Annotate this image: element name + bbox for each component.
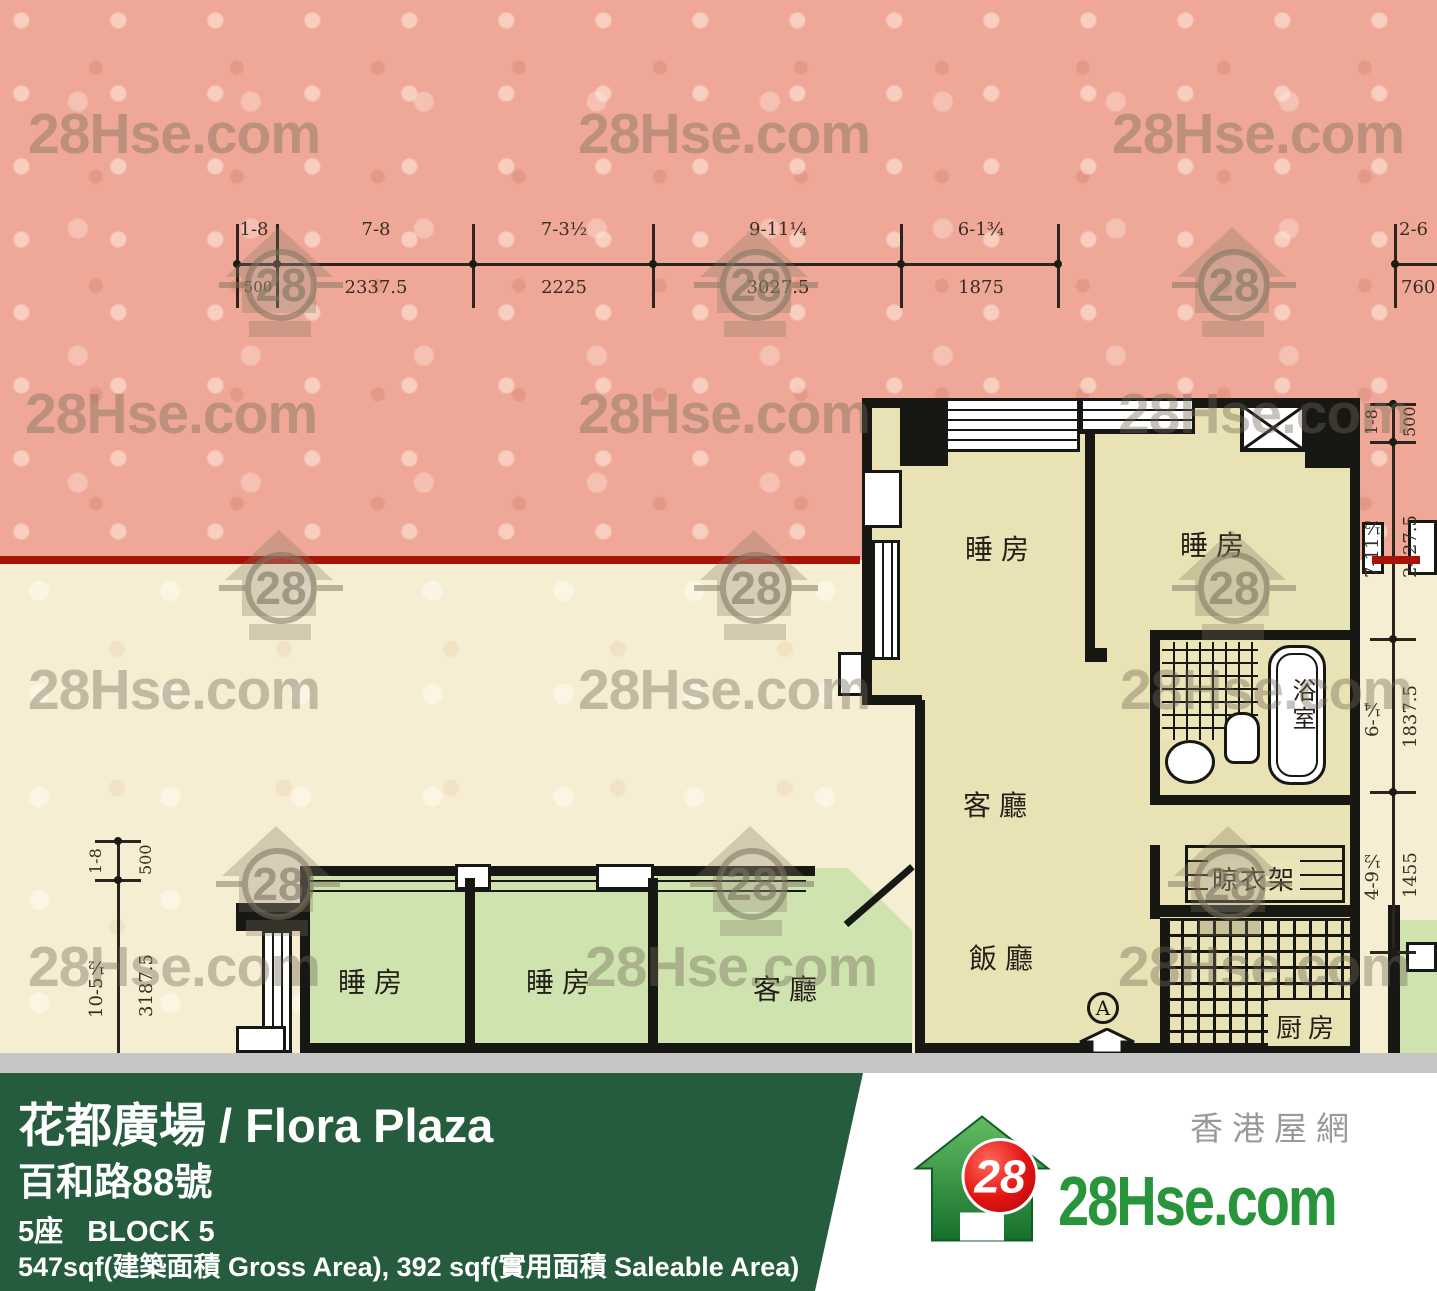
dimension-point [469, 260, 477, 268]
wall-pillar [900, 402, 948, 466]
dim-label-feet: 1-8 [86, 836, 105, 886]
window-icon [945, 398, 1080, 452]
svg-text:28: 28 [1208, 562, 1259, 614]
dim-label-feet: 7-3½ [512, 219, 616, 240]
dimension-point [1391, 260, 1399, 268]
window-icon [872, 540, 900, 660]
watermark-28hse-text: 28Hse.com [28, 657, 320, 723]
dimension-point [1054, 260, 1062, 268]
dim-label-feet: 7-8 [338, 219, 414, 240]
dim-label-mm: 2225 [518, 277, 610, 298]
svg-text:28: 28 [730, 259, 781, 311]
divider-strip [0, 1053, 1437, 1073]
block-label: 5座 BLOCK 5 [18, 1208, 215, 1250]
dimension-point [897, 260, 905, 268]
dim-label-mm: 1455 [1400, 816, 1421, 934]
project-address: 百和路88號 [18, 1151, 212, 1206]
dim-label-mm: 500 [136, 834, 155, 886]
watermark-28-house-icon: 28 [694, 530, 818, 650]
room-label-kitchen: 厨房 [1276, 1008, 1340, 1045]
logo-cn-text: 香港屋網 [1190, 1102, 1358, 1150]
floorplan-page: 浴室 晾衣架 厨房 A 睡房 睡房 客廳 飯廳 睡房 睡房 客廳 [0, 0, 1437, 1291]
wall [915, 700, 925, 1053]
lobby-box [862, 470, 902, 528]
watermark-28-house-icon: 28 [1172, 227, 1296, 347]
svg-text:28: 28 [255, 562, 306, 614]
red-boundary-line [1372, 556, 1420, 564]
dim-label-mm: 2337.5 [330, 277, 422, 298]
svg-text:28: 28 [1204, 858, 1255, 910]
watermark-28hse-text: 28Hse.com [1118, 381, 1410, 447]
watermark-28-house-icon: 28 [690, 826, 814, 946]
area-label: 547sqf(建築面積 Gross Area), 392 sqf(實用面積 Sa… [18, 1245, 799, 1284]
window-box [236, 1026, 286, 1053]
dimension-point [114, 876, 122, 884]
window-box [596, 864, 654, 890]
dimension-point [649, 260, 657, 268]
svg-text:28: 28 [1208, 259, 1259, 311]
project-title: 花都廣場 / Flora Plaza [18, 1087, 493, 1156]
wall [465, 878, 475, 1053]
watermark-28hse-text: 28Hse.com [1112, 101, 1404, 167]
dimension-point [114, 837, 122, 845]
entrance-arrow-icon [1078, 1028, 1136, 1054]
svg-text:28: 28 [726, 858, 777, 910]
logo-brand-text: 28Hse.com [1058, 1160, 1336, 1241]
toilet-icon [1165, 740, 1215, 784]
wall [300, 1043, 912, 1053]
watermark-28-house-icon: 28 [216, 826, 340, 946]
watermark-28-house-icon: 28 [1168, 826, 1292, 946]
dimension-point [1389, 635, 1397, 643]
watermark-28-house-icon: 28 [219, 530, 343, 650]
room-label-dining: 飯廳 [969, 937, 1041, 977]
dim-label-feet: 6-1¾ [926, 219, 1036, 240]
svg-text:28: 28 [973, 1151, 1026, 1203]
watermark-28-house-icon: 28 [694, 227, 818, 347]
wall [1150, 795, 1360, 805]
dimension-point [1389, 788, 1397, 796]
dim-label-feet: 4-9½ [1362, 812, 1383, 938]
svg-text:28: 28 [252, 858, 303, 910]
dim-label-feet: 7-11½ [1362, 472, 1383, 622]
svg-text:28: 28 [255, 259, 306, 311]
room-label-bedroom: 睡房 [338, 961, 410, 1001]
dim-label-feet: 2-6 [1399, 219, 1437, 240]
watermark-28-house-icon: 28 [1172, 530, 1296, 650]
room-label-bedroom: 睡房 [965, 528, 1037, 568]
wall [1085, 398, 1095, 648]
watermark-28hse-text: 28Hse.com [578, 381, 870, 447]
wall [862, 695, 922, 705]
room-label-living: 客廳 [963, 784, 1035, 824]
watermark-28hse-text: 28Hse.com [578, 657, 870, 723]
watermark-28-house-icon: 28 [219, 227, 343, 347]
logo-house-icon: 28 [912, 1112, 1052, 1248]
dim-label-mm: 2427.5 [1400, 474, 1421, 620]
window-box [1406, 942, 1437, 972]
watermark-28hse-text: 28Hse.com [25, 381, 317, 447]
dim-label-mm: 1875 [932, 277, 1030, 298]
watermark-28hse-text: 28Hse.com [1120, 657, 1412, 723]
svg-text:28: 28 [730, 562, 781, 614]
dimension-line [237, 263, 1059, 266]
dimension-line [1395, 263, 1437, 266]
entrance-marker: A [1087, 992, 1119, 1024]
wall [1085, 648, 1107, 662]
watermark-28hse-text: 28Hse.com [28, 101, 320, 167]
dim-label-mm: 760 [1401, 277, 1437, 298]
watermark-28hse-text: 28Hse.com [578, 101, 870, 167]
